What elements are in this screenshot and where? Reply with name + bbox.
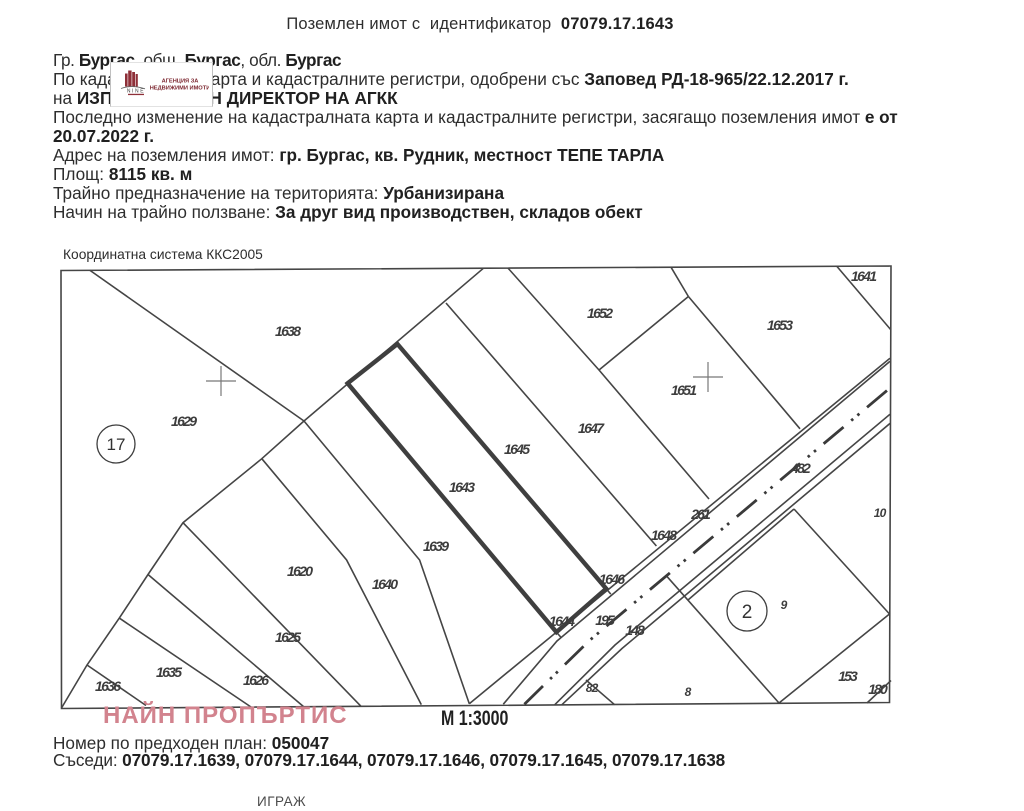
svg-text:НЕДВИЖИМИ ИМОТИ: НЕДВИЖИМИ ИМОТИ	[150, 85, 209, 91]
svg-text:2: 2	[742, 602, 753, 623]
svg-text:8: 8	[685, 685, 692, 699]
svg-text:1641: 1641	[851, 268, 877, 284]
svg-text:9: 9	[781, 598, 788, 612]
svg-text:1653: 1653	[767, 317, 793, 333]
svg-text:АГЕНЦИЯ ЗА: АГЕНЦИЯ ЗА	[162, 78, 199, 84]
svg-text:17: 17	[107, 435, 126, 454]
svg-text:153: 153	[838, 668, 858, 684]
svg-text:82: 82	[586, 681, 599, 695]
svg-text:1626: 1626	[243, 672, 269, 688]
svg-text:1645: 1645	[504, 441, 530, 457]
svg-text:1647: 1647	[578, 420, 605, 436]
svg-text:1625: 1625	[275, 629, 301, 645]
svg-text:1648: 1648	[651, 527, 677, 543]
svg-text:10: 10	[874, 506, 887, 520]
svg-text:NINE: NINE	[127, 89, 145, 95]
svg-text:482: 482	[790, 460, 811, 476]
svg-text:1638: 1638	[275, 323, 301, 339]
svg-text:1651: 1651	[671, 382, 697, 398]
svg-text:1636: 1636	[95, 678, 121, 694]
svg-text:1635: 1635	[156, 664, 182, 680]
svg-text:261: 261	[690, 506, 711, 522]
svg-text:1644: 1644	[549, 613, 575, 629]
svg-text:1640: 1640	[372, 576, 398, 592]
svg-text:148: 148	[625, 622, 645, 638]
svg-text:1652: 1652	[587, 305, 613, 321]
svg-text:180: 180	[868, 681, 888, 697]
svg-text:195: 195	[595, 612, 615, 628]
svg-text:1620: 1620	[287, 563, 313, 579]
svg-text:1646: 1646	[599, 571, 625, 587]
svg-text:1643: 1643	[449, 479, 475, 495]
svg-text:1639: 1639	[423, 538, 449, 554]
svg-text:1629: 1629	[171, 413, 197, 429]
